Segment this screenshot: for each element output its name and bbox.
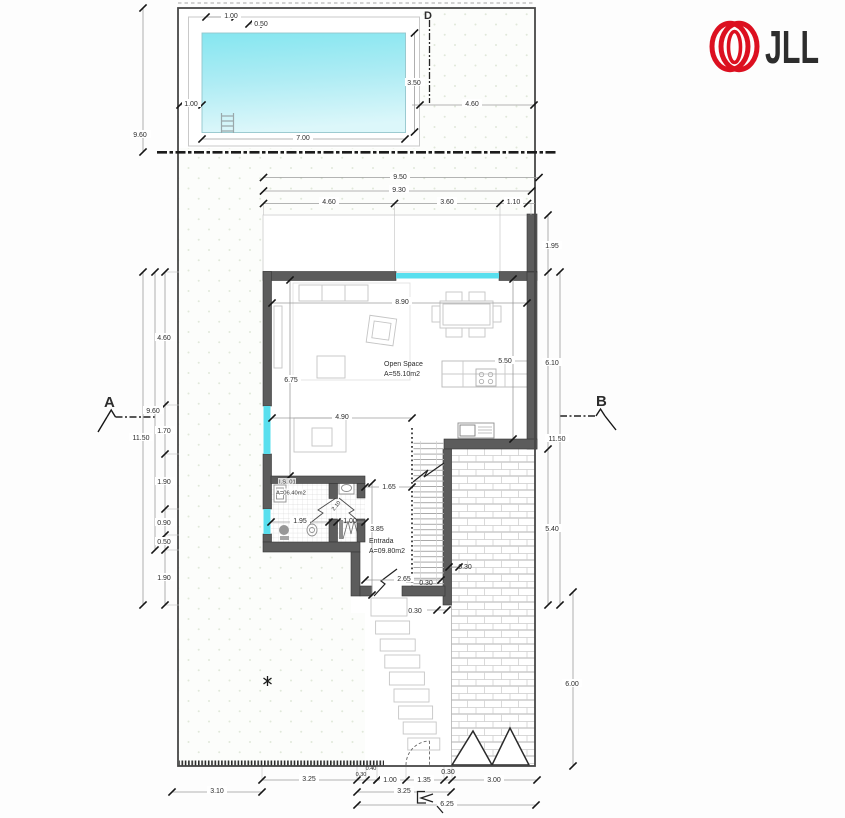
svg-text:7.00: 7.00 <box>296 135 310 142</box>
svg-text:A=09.80m2: A=09.80m2 <box>369 548 405 555</box>
svg-text:1.70: 1.70 <box>157 428 171 435</box>
svg-text:1.90: 1.90 <box>157 575 171 582</box>
svg-text:1.00: 1.00 <box>383 777 397 784</box>
svg-text:5.40: 5.40 <box>545 526 559 533</box>
svg-text:0.50: 0.50 <box>254 21 268 28</box>
svg-text:3.85: 3.85 <box>370 526 384 533</box>
svg-text:3.00: 3.00 <box>487 777 501 784</box>
svg-text:0.90: 0.90 <box>157 520 171 527</box>
svg-text:0.30: 0.30 <box>419 580 433 587</box>
svg-text:9.60: 9.60 <box>146 408 160 415</box>
svg-text:A=55.10m2: A=55.10m2 <box>384 371 420 378</box>
svg-text:1.95: 1.95 <box>293 518 307 525</box>
svg-text:4.60: 4.60 <box>465 101 479 108</box>
svg-text:Open Space: Open Space <box>384 361 423 368</box>
svg-text:0.40: 0.40 <box>366 766 377 772</box>
svg-text:1.90: 1.90 <box>157 479 171 486</box>
svg-text:11.50: 11.50 <box>549 436 566 443</box>
svg-text:3.25: 3.25 <box>302 776 316 783</box>
svg-text:A: A <box>104 394 115 411</box>
svg-text:Entrada: Entrada <box>369 538 394 545</box>
svg-text:6.75: 6.75 <box>284 377 298 384</box>
svg-text:0.30: 0.30 <box>441 769 455 776</box>
svg-text:6.00: 6.00 <box>565 681 579 688</box>
svg-text:3.10: 3.10 <box>210 788 224 795</box>
svg-text:1.65: 1.65 <box>382 484 396 491</box>
svg-text:0.30: 0.30 <box>408 608 422 615</box>
svg-text:1.35: 1.35 <box>417 777 431 784</box>
svg-text:6.10: 6.10 <box>545 360 559 367</box>
svg-text:1.95: 1.95 <box>545 243 559 250</box>
svg-text:6.25: 6.25 <box>440 801 454 808</box>
svg-text:2.65: 2.65 <box>397 576 411 583</box>
svg-text:1.10: 1.10 <box>507 199 521 206</box>
svg-text:8.90: 8.90 <box>395 299 409 306</box>
svg-text:9.50: 9.50 <box>393 174 407 181</box>
svg-text:4.60: 4.60 <box>157 335 171 342</box>
svg-text:4.60: 4.60 <box>322 199 336 206</box>
svg-text:JLL: JLL <box>765 21 819 73</box>
svg-text:0.30: 0.30 <box>458 564 472 571</box>
svg-text:1.00: 1.00 <box>224 13 238 20</box>
svg-text:D: D <box>424 10 432 22</box>
svg-text:1.00: 1.00 <box>184 101 198 108</box>
svg-text:3.25: 3.25 <box>397 788 411 795</box>
svg-text:9.30: 9.30 <box>392 187 406 194</box>
svg-text:4.90: 4.90 <box>335 414 349 421</box>
svg-text:0.30: 0.30 <box>356 772 367 778</box>
svg-text:1.00: 1.00 <box>343 518 357 525</box>
svg-text:B: B <box>596 393 607 410</box>
svg-text:11.50: 11.50 <box>133 435 150 442</box>
svg-text:3.50: 3.50 <box>407 80 421 87</box>
svg-text:5.50: 5.50 <box>498 358 512 365</box>
svg-text:0.50: 0.50 <box>157 539 171 546</box>
svg-text:3.60: 3.60 <box>440 199 454 206</box>
svg-text:9.60: 9.60 <box>133 132 147 139</box>
svg-text:A=06.40m2: A=06.40m2 <box>276 491 306 497</box>
svg-text:I.S. 01: I.S. 01 <box>279 480 296 486</box>
